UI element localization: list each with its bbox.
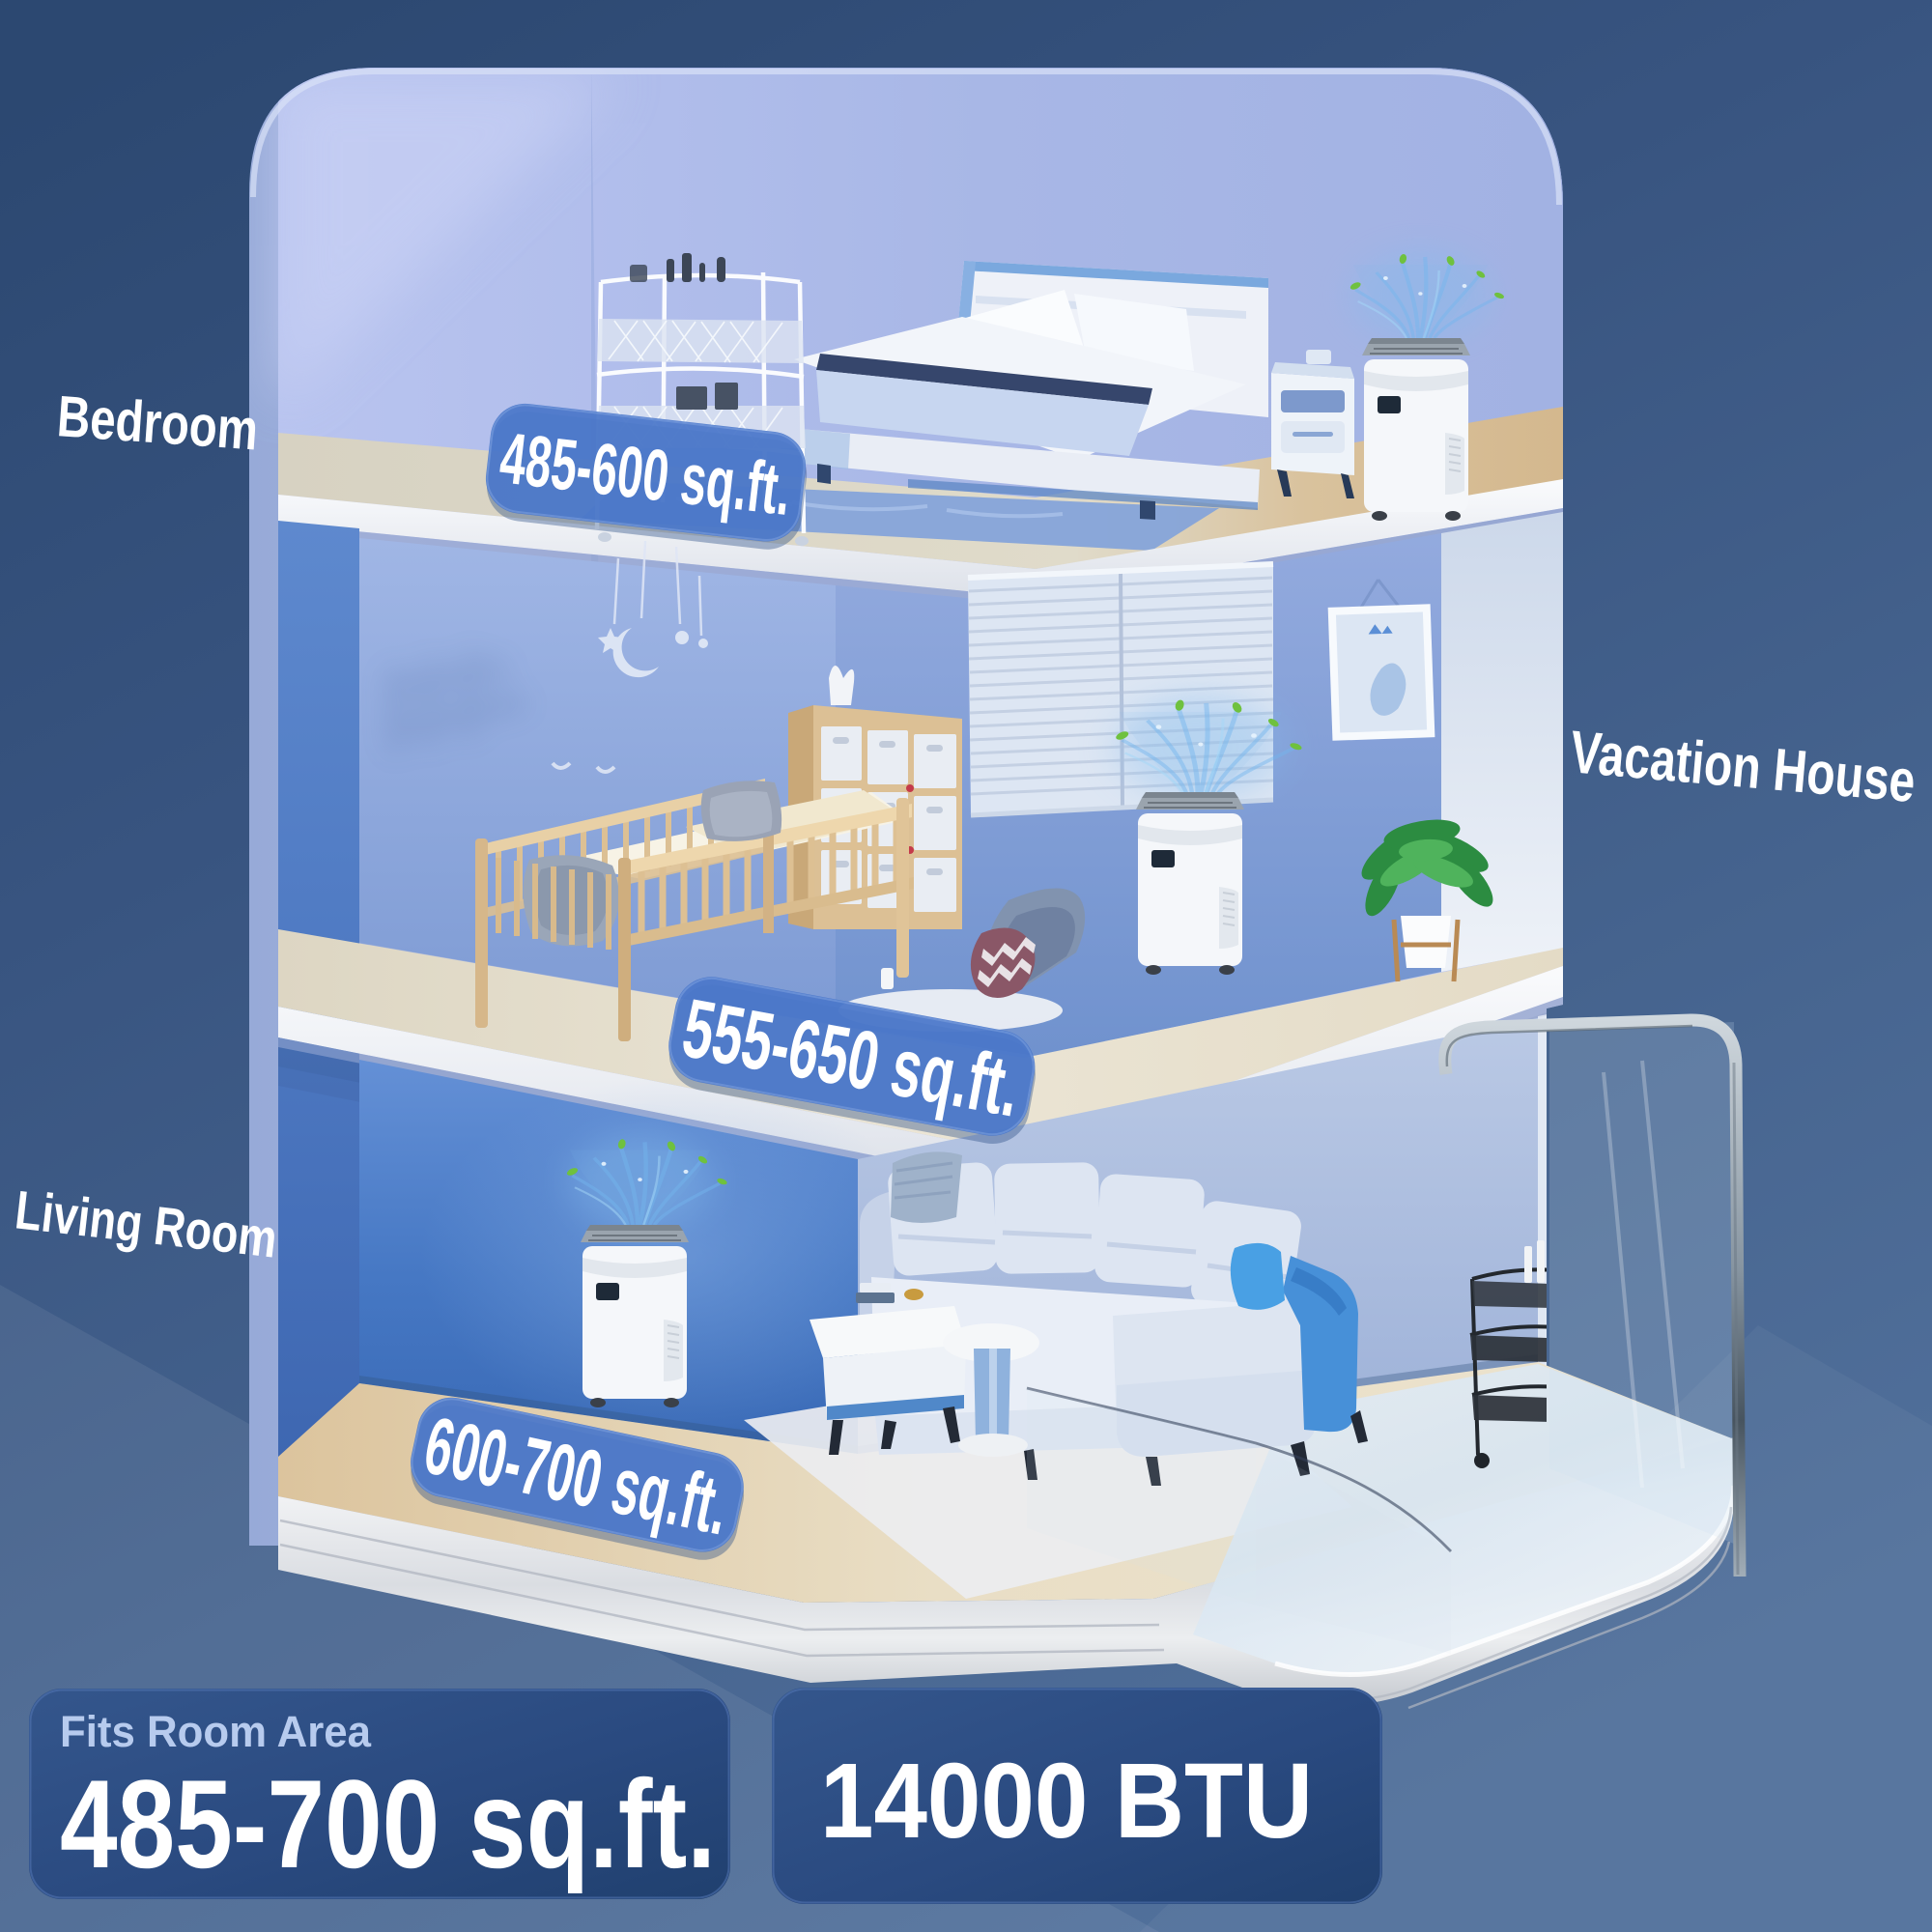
svg-text:14000 BTU: 14000 BTU bbox=[820, 1742, 1313, 1861]
svg-text:485-700 sq.ft.: 485-700 sq.ft. bbox=[60, 1753, 716, 1894]
svg-text:Fits Room Area: Fits Room Area bbox=[60, 1707, 372, 1756]
